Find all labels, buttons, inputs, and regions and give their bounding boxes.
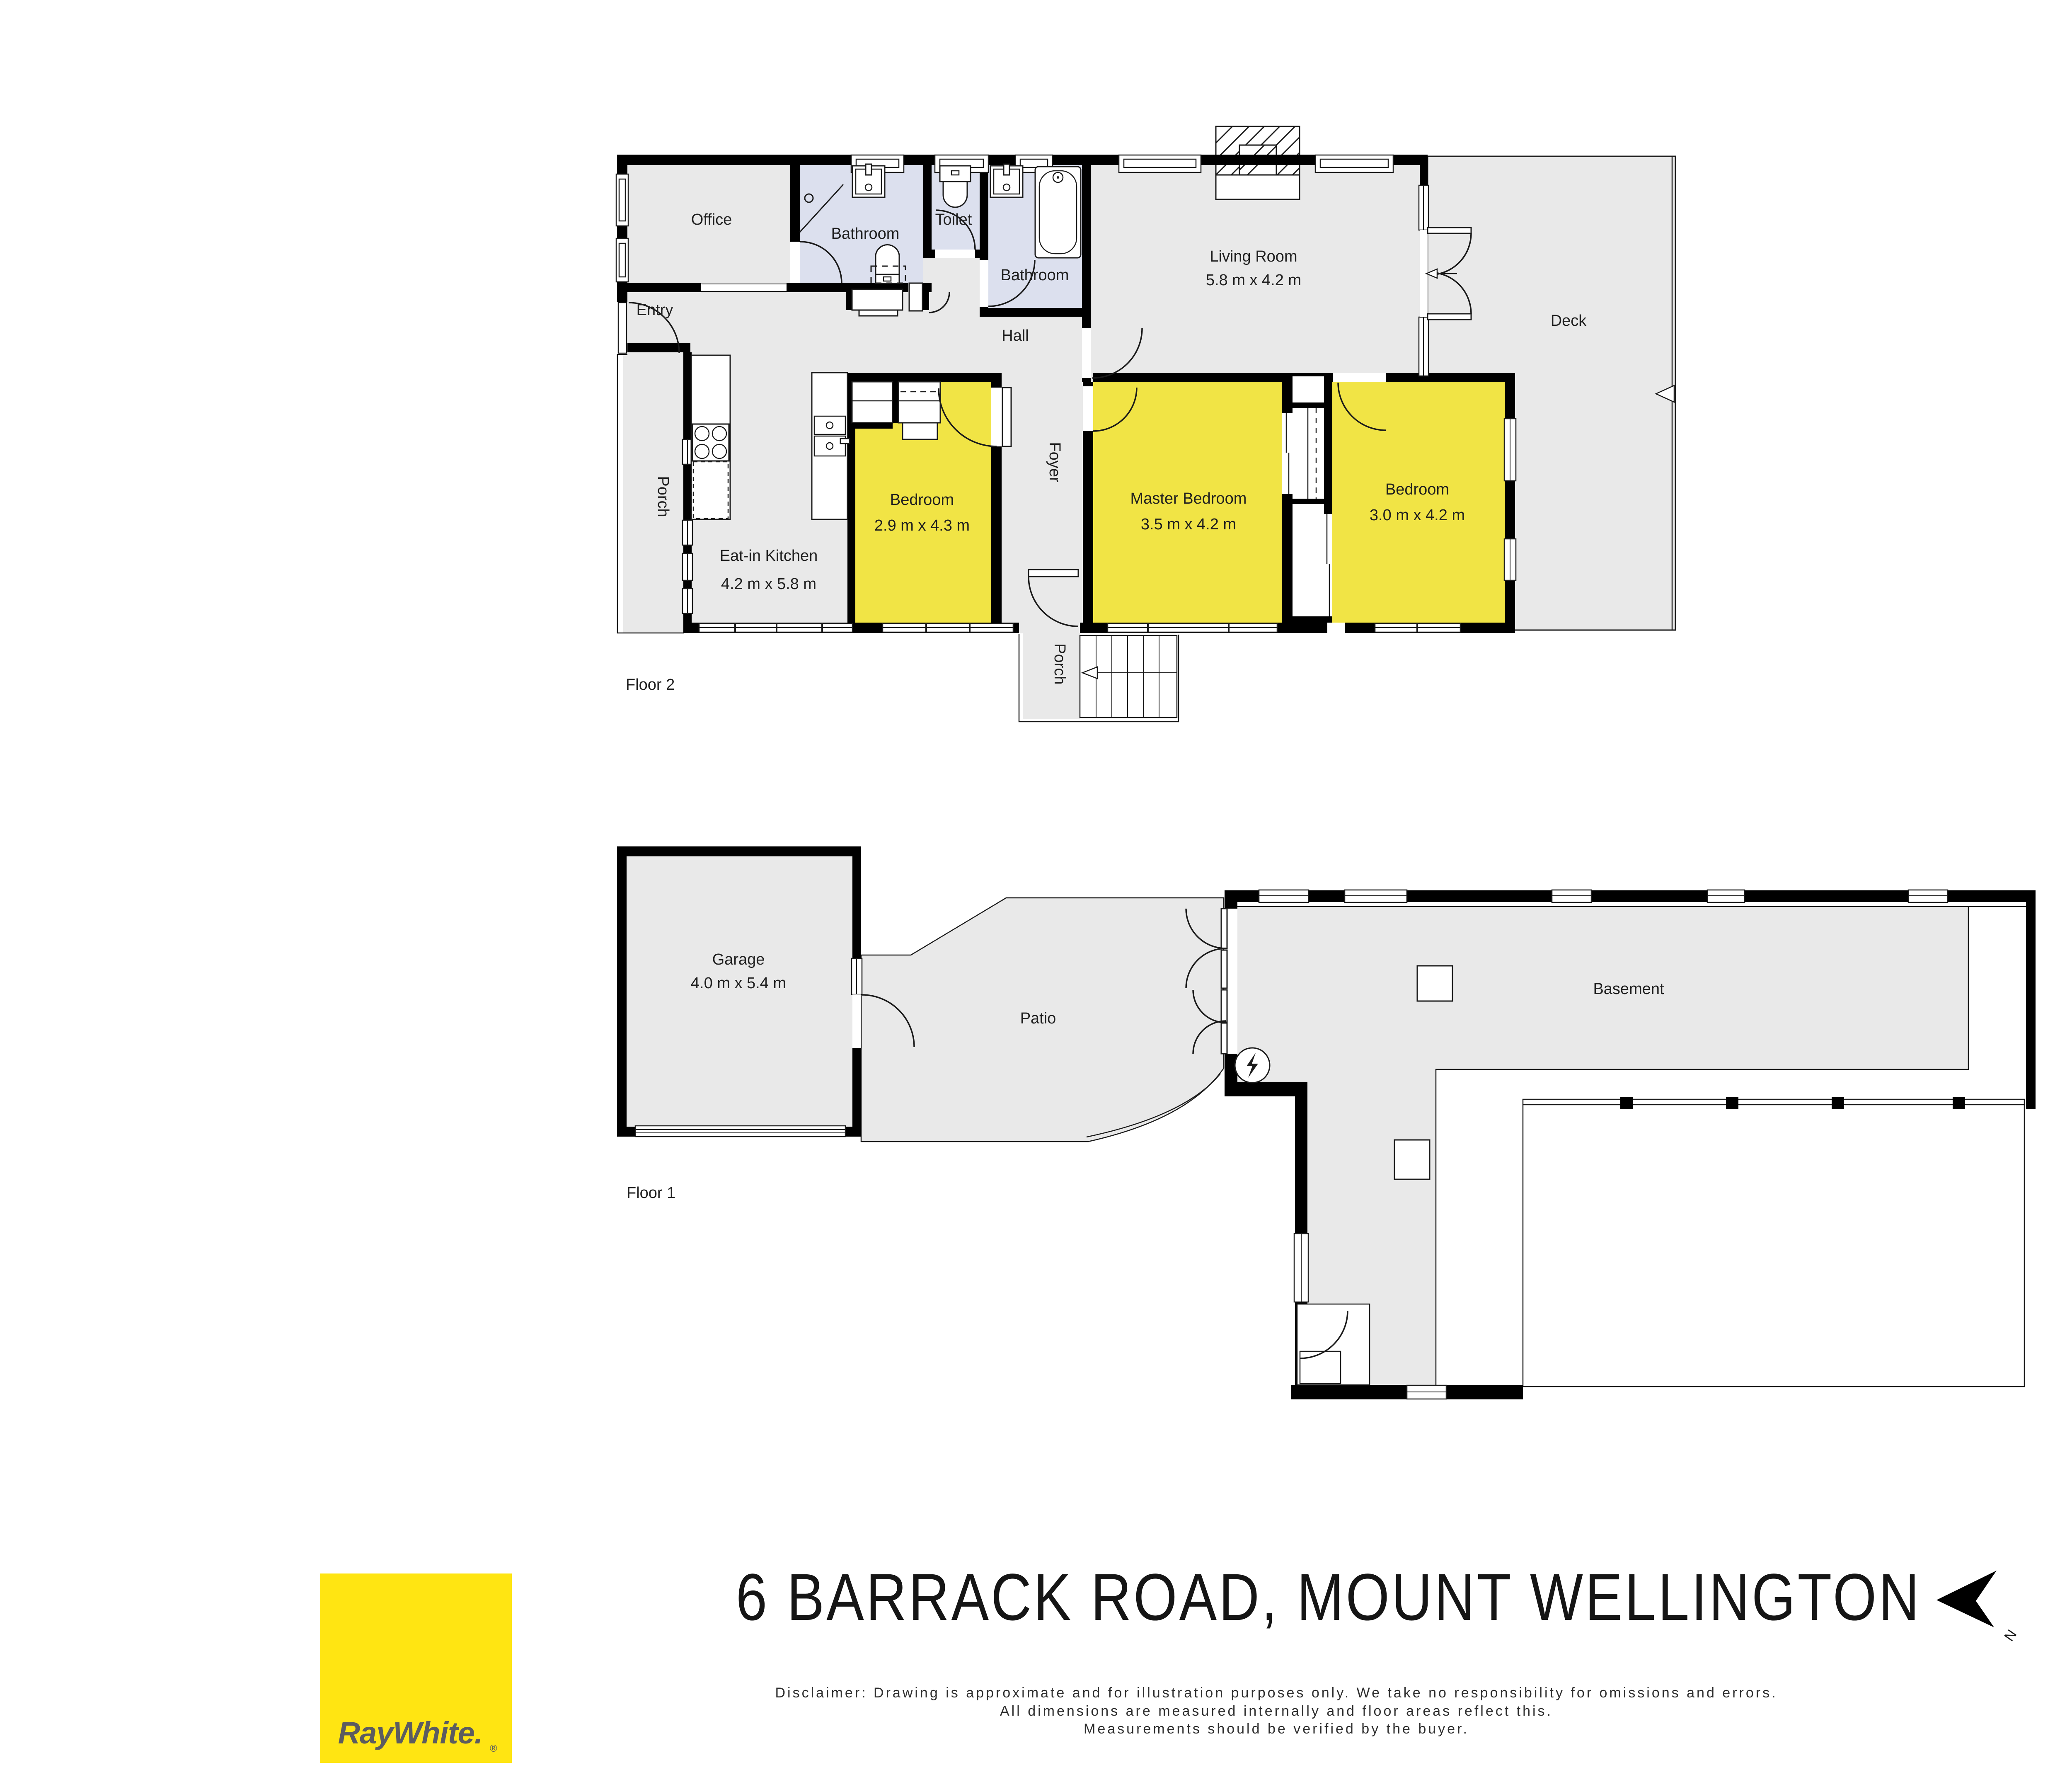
- svg-text:Eat-in Kitchen: Eat-in Kitchen: [720, 547, 818, 565]
- svg-text:Deck: Deck: [1551, 312, 1587, 330]
- svg-text:Floor 2: Floor 2: [626, 676, 675, 693]
- svg-text:5.8 m x 4.2 m: 5.8 m x 4.2 m: [1206, 272, 1301, 289]
- svg-text:Bedroom: Bedroom: [890, 491, 954, 509]
- svg-text:6 BARRACK ROAD, MOUNT WELLINGT: 6 BARRACK ROAD, MOUNT WELLINGTON: [736, 1560, 1922, 1634]
- svg-text:Master Bedroom: Master Bedroom: [1130, 490, 1247, 507]
- svg-text:2.9 m x 4.3 m: 2.9 m x 4.3 m: [874, 517, 970, 534]
- svg-text:Bedroom: Bedroom: [1385, 481, 1449, 498]
- svg-text:Disclaimer: Drawing is approxi: Disclaimer: Drawing is approximate and f…: [775, 1685, 1777, 1701]
- svg-text:Patio: Patio: [1020, 1010, 1056, 1027]
- svg-text:All dimensions are measured in: All dimensions are measured internally a…: [1000, 1703, 1553, 1719]
- svg-text:Floor 1: Floor 1: [627, 1184, 675, 1202]
- svg-text:Entry: Entry: [637, 301, 673, 319]
- svg-text:3.5 m x 4.2 m: 3.5 m x 4.2 m: [1141, 516, 1236, 533]
- svg-text:4.2 m x 5.8 m: 4.2 m x 5.8 m: [721, 575, 816, 593]
- svg-text:Office: Office: [691, 211, 732, 228]
- svg-text:Bathroom: Bathroom: [1001, 267, 1069, 284]
- svg-text:Measurements should be verifie: Measurements should be verified by the b…: [1084, 1721, 1469, 1737]
- svg-text:Porch: Porch: [1051, 643, 1068, 684]
- svg-text:3.0 m x 4.2 m: 3.0 m x 4.2 m: [1370, 507, 1465, 524]
- svg-text:Bathroom: Bathroom: [831, 225, 900, 242]
- svg-text:4.0 m x 5.4 m: 4.0 m x 5.4 m: [691, 975, 786, 992]
- svg-text:RayWhite.: RayWhite.: [338, 1716, 483, 1750]
- svg-text:Garage: Garage: [712, 951, 765, 968]
- svg-text:Toilet: Toilet: [935, 211, 972, 228]
- svg-text:Hall: Hall: [1002, 327, 1029, 344]
- svg-text:Foyer: Foyer: [1046, 442, 1063, 482]
- svg-text:Basement: Basement: [1593, 980, 1664, 998]
- svg-text:Porch: Porch: [654, 476, 672, 517]
- svg-text:Living Room: Living Room: [1210, 248, 1297, 265]
- svg-text:®: ®: [490, 1743, 497, 1754]
